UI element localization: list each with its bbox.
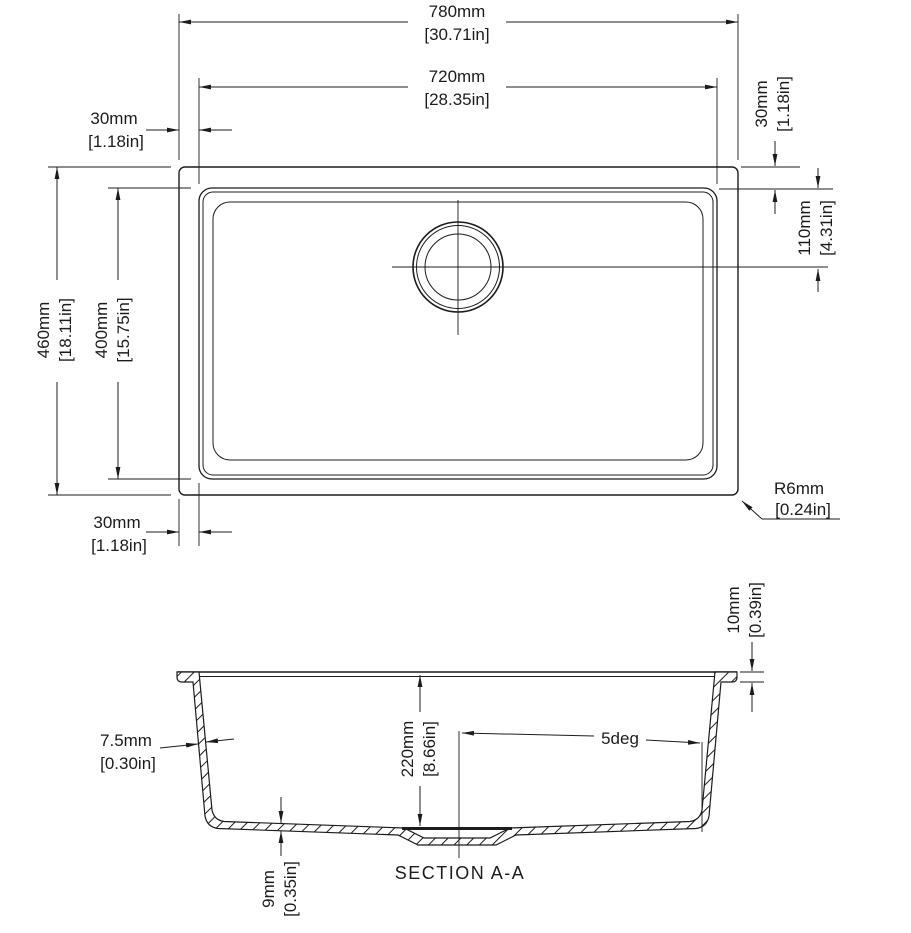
dim-wall-angle-value: 5deg [601, 729, 639, 748]
dim-bowl-depth: 220mm [8.66in] [398, 675, 439, 826]
dim-left-offset-bottom-in: [1.18in] [91, 536, 147, 555]
dim-bottom-thickness-mm: 9mm [259, 870, 278, 908]
dim-overall-height-mm: 460mm [34, 302, 53, 359]
dim-drain-offset-in: [4.31in] [817, 200, 836, 256]
dimension-arrow [462, 733, 594, 736]
dim-wall-thickness: 7.5mm [0.30in] [100, 731, 234, 773]
dim-left-offset-top-in: [1.18in] [88, 132, 144, 151]
leader-arrow [742, 501, 762, 519]
section-view [177, 672, 737, 858]
sink-outer-outline [179, 167, 738, 495]
dim-left-offset-top-mm: 30mm [90, 109, 137, 128]
dim-overall-height-in: [18.11in] [56, 298, 75, 362]
dim-inner-height: 400mm [15.75in] [92, 188, 191, 479]
dim-overall-width-in: [30.71in] [424, 25, 489, 44]
dim-left-offset-bottom: 30mm [1.18in] [91, 483, 232, 555]
dim-inner-width-in: [28.35in] [424, 90, 489, 109]
dim-left-offset-bottom-mm: 30mm [93, 513, 140, 532]
dim-bottom-thickness-in: [0.35in] [281, 861, 300, 917]
dim-right-offset: 30mm [1.18in] [719, 76, 833, 214]
dim-bowl-depth-mm: 220mm [398, 721, 417, 778]
dim-corner-radius: R6mm [0.24in] [742, 479, 840, 519]
section-cross-section [177, 672, 737, 845]
sink-dimension-drawing: 780mm [30.71in] 720mm [28.35in] 30mm [1.… [0, 0, 911, 933]
dim-bowl-depth-in: [8.66in] [420, 721, 439, 777]
dim-wall-thickness-mm: 7.5mm [100, 731, 152, 750]
dim-rim-height-mm: 10mm [724, 586, 743, 633]
dimension-arrow [206, 739, 234, 742]
dim-corner-radius-mm: R6mm [774, 479, 824, 498]
dim-inner-width-mm: 720mm [429, 67, 486, 86]
plan-view [179, 167, 828, 495]
dim-left-offset-top: 30mm [1.18in] [88, 109, 232, 151]
section-title: SECTION A-A [395, 863, 526, 883]
dim-corner-radius-in: [0.24in] [775, 500, 831, 519]
dim-wall-angle: 5deg [462, 729, 700, 748]
dim-wall-thickness-in: [0.30in] [100, 754, 156, 773]
dim-right-offset-mm: 30mm [752, 80, 771, 127]
dimension-arrow [646, 740, 700, 743]
dim-overall-width-mm: 780mm [429, 2, 486, 21]
dim-right-offset-in: [1.18in] [774, 76, 793, 132]
dim-rim-height-in: [0.39in] [746, 582, 765, 638]
dimension-arrow [160, 744, 198, 748]
dim-inner-height-mm: 400mm [92, 302, 111, 359]
drawing-canvas: 780mm [30.71in] 720mm [28.35in] 30mm [1.… [0, 0, 911, 933]
dim-drain-offset: 110mm [4.31in] [795, 168, 836, 292]
dim-rim-height: 10mm [0.39in] [724, 582, 765, 712]
dim-bottom-thickness: 9mm [0.35in] [259, 797, 300, 917]
dim-inner-height-in: [15.75in] [114, 297, 133, 362]
dim-drain-offset-mm: 110mm [795, 200, 814, 255]
